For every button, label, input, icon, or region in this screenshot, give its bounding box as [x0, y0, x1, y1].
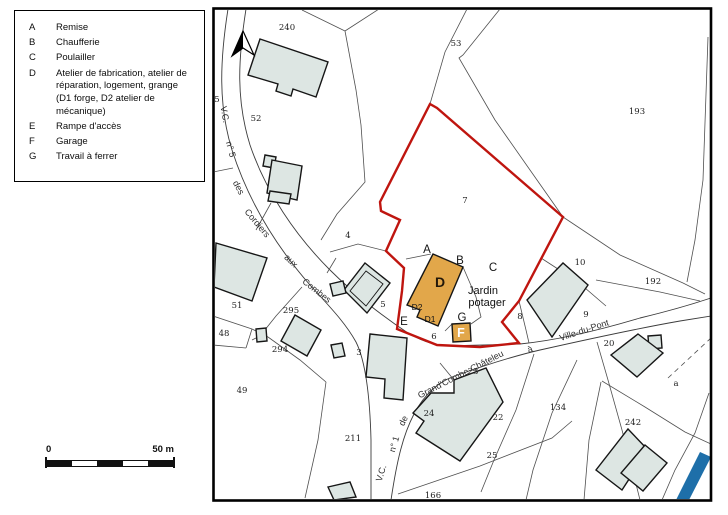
- parcel-number: 7: [462, 196, 467, 206]
- parcel-number: 192: [645, 277, 661, 287]
- parcel-number: 24: [424, 409, 435, 419]
- cadastral-map: 2405319352574512955482943492116891019220…: [0, 0, 728, 515]
- parcel-number: 3: [356, 348, 361, 358]
- building-letter: D1: [425, 314, 436, 324]
- parcel-number: 8: [517, 312, 522, 322]
- parcel-number: a: [673, 379, 678, 389]
- parcel-number: 9: [583, 310, 588, 320]
- parcel-number: 10: [575, 258, 586, 268]
- building-letter: E: [400, 316, 408, 328]
- parcel-number: 51: [232, 301, 243, 311]
- parcel-number: 20: [604, 339, 615, 349]
- parcel-number: 166: [425, 491, 441, 501]
- parcel-number: 49: [237, 386, 248, 396]
- building-letter: D2: [412, 302, 423, 312]
- building-letter: D: [435, 274, 445, 290]
- building-letter: C: [489, 262, 497, 274]
- parcel-number: 5: [214, 95, 219, 105]
- parcel-number: 294: [272, 345, 288, 355]
- building-letter: B: [456, 255, 464, 267]
- building-letter: F: [457, 326, 465, 340]
- page: { "legend": { "items": [ {"key":"A","lab…: [0, 0, 728, 515]
- building: [330, 281, 346, 296]
- jardin-potager-label: Jardin: [468, 285, 498, 297]
- parcel-number: 25: [487, 451, 498, 461]
- building-letter: G: [458, 312, 467, 324]
- parcel-number: 240: [279, 23, 295, 33]
- parcel-number: 193: [629, 107, 645, 117]
- jardin-potager-label: potager: [468, 297, 506, 309]
- parcel-number: 295: [283, 306, 299, 316]
- building: [331, 343, 345, 358]
- parcel-number: 52: [251, 114, 262, 124]
- parcel-number: 53: [451, 39, 462, 49]
- parcel-number: 22: [493, 413, 504, 423]
- building-letter: A: [423, 244, 431, 256]
- parcel-number: 5: [380, 300, 385, 310]
- building: [256, 328, 267, 342]
- parcel-number: 134: [550, 403, 566, 413]
- parcel-number: 211: [345, 434, 361, 444]
- building: [268, 191, 291, 204]
- parcel-number: 6: [431, 332, 436, 342]
- parcel-number: 242: [625, 418, 641, 428]
- parcel-number: 4: [345, 231, 350, 241]
- parcel-number: 48: [219, 329, 230, 339]
